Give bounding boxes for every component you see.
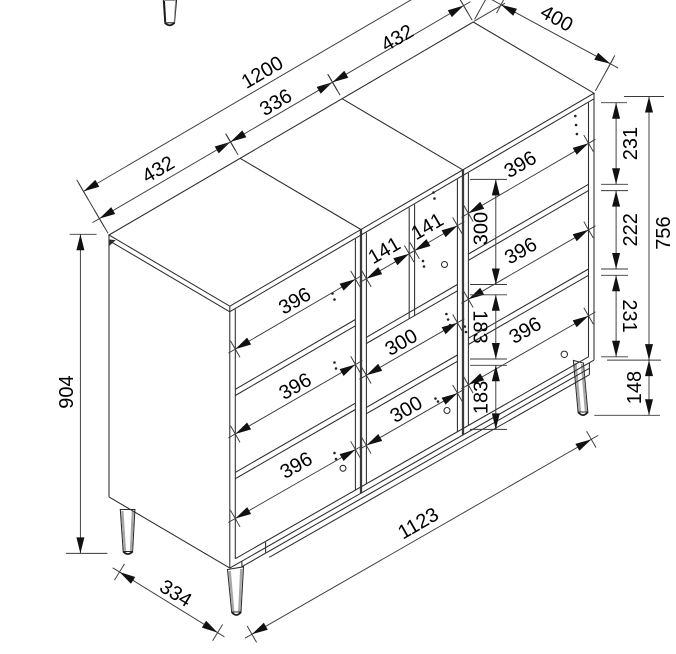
svg-text:183: 183	[470, 381, 492, 414]
svg-text:222: 222	[620, 213, 642, 246]
svg-text:300: 300	[470, 212, 492, 245]
svg-text:231: 231	[618, 299, 640, 332]
svg-text:148: 148	[624, 371, 646, 404]
svg-text:756: 756	[653, 216, 675, 249]
svg-text:904: 904	[56, 375, 78, 408]
svg-text:183: 183	[468, 310, 490, 343]
svg-text:231: 231	[620, 127, 642, 160]
